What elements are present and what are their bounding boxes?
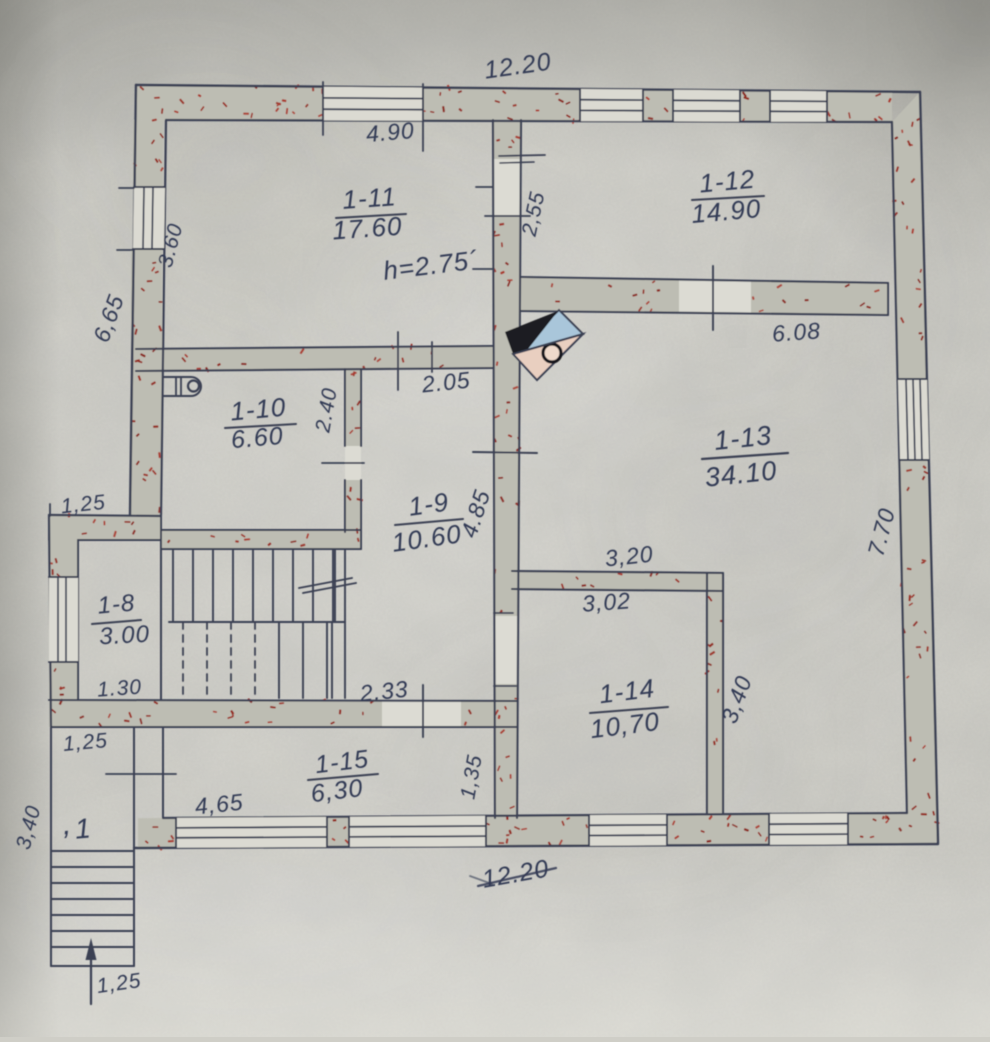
- svg-text:1-9: 1-9: [407, 486, 451, 521]
- svg-text:3,02: 3,02: [581, 587, 631, 616]
- svg-text:17.60: 17.60: [331, 211, 403, 246]
- svg-text:2.33: 2.33: [358, 676, 410, 707]
- svg-text:1-8: 1-8: [96, 589, 136, 619]
- svg-text:14.90: 14.90: [690, 193, 762, 229]
- svg-text:4.90: 4.90: [365, 117, 416, 147]
- svg-text:6.08: 6.08: [771, 317, 821, 346]
- svg-text:1,25: 1,25: [62, 729, 109, 756]
- svg-text:1.30: 1.30: [96, 675, 142, 701]
- svg-text:6.60: 6.60: [230, 422, 285, 454]
- svg-text:2.05: 2.05: [420, 367, 472, 398]
- svg-text:1: 1: [74, 812, 93, 844]
- svg-text:3,20: 3,20: [604, 541, 655, 572]
- svg-text:3.00: 3.00: [99, 621, 151, 651]
- svg-text:1-13: 1-13: [713, 420, 774, 456]
- svg-text:1,25: 1,25: [60, 491, 107, 519]
- svg-text:4,65: 4,65: [194, 789, 245, 820]
- svg-text:1-11: 1-11: [341, 181, 397, 215]
